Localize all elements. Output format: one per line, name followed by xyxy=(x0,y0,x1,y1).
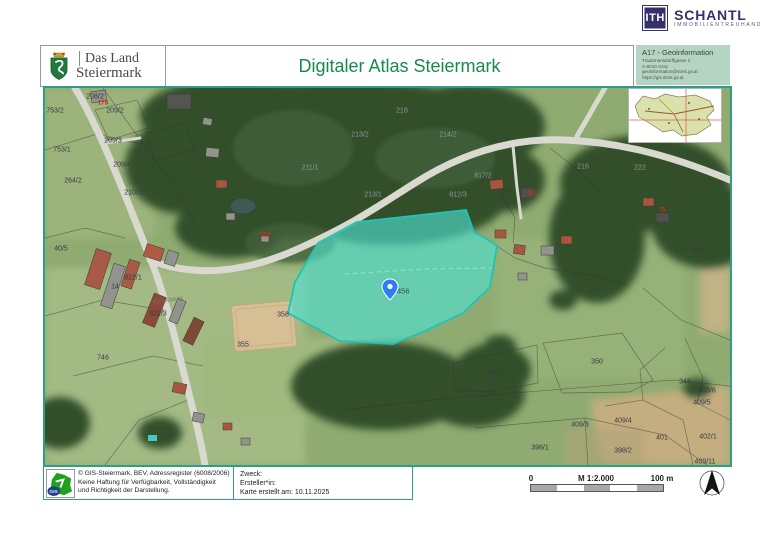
steiermark-overview-icon xyxy=(629,89,721,142)
copyright-line2: Keine Haftung für Verfügbarkeit, Vollstä… xyxy=(78,479,230,487)
header-bar: Das Land Steiermark Digitaler Atlas Stei… xyxy=(40,45,634,87)
aerial-imagery xyxy=(45,88,730,465)
zweck-label: Zweck: xyxy=(240,470,412,479)
logo-text-line1: Das Land xyxy=(79,51,142,66)
svg-text:GIS: GIS xyxy=(49,489,58,495)
brand-name: SCHANTL xyxy=(674,8,762,22)
scalebar-zero: 0 xyxy=(529,474,533,483)
pin-parcel-number: 456 xyxy=(397,287,410,296)
page-title: Digitaler Atlas Steiermark xyxy=(166,46,633,86)
ith-logo-icon: ITH xyxy=(642,5,668,31)
land-steiermark-logo: Das Land Steiermark xyxy=(41,46,166,86)
north-arrow-icon xyxy=(699,467,725,499)
copyright-line1: © GIS-Steiermark, BEV, Adressregister (6… xyxy=(78,470,230,478)
brand-subtitle: IMMOBILIENTREUHAND xyxy=(674,22,762,29)
department-info-box: A17 - Geoinformation Trauttmansdorffgass… xyxy=(636,45,730,85)
department-url: https://gis.stmk.gv.at xyxy=(642,75,730,81)
metadata-box: Zweck: Ersteller*in: Karte erstellt am: … xyxy=(233,466,413,500)
scalebar-max: 100 m xyxy=(651,474,674,483)
logo-text-line2: Steiermark xyxy=(76,66,142,81)
scalebar-ratio: M 1:2.000 xyxy=(578,474,614,483)
locator-inset-map xyxy=(628,88,722,143)
gis-steiermark-logo: GIS xyxy=(46,469,75,498)
ith-schantl-logo: ITH SCHANTL IMMOBILIENTREUHAND xyxy=(642,5,762,31)
scalebar xyxy=(530,484,664,492)
map-export-page: { "brand": {"abbr": "ITH", "name": "SCHA… xyxy=(0,0,770,545)
department-title: A17 - Geoinformation xyxy=(642,48,730,57)
copyright-line3: und Richtigkeit der Darstellung. xyxy=(78,487,230,495)
created-date: Karte erstellt am: 10.11.2025 xyxy=(240,488,412,497)
copyright-box: GIS © GIS-Steiermark, BEV, Adressregiste… xyxy=(43,466,234,500)
ersteller-label: Ersteller*in: xyxy=(240,479,412,488)
steiermark-shield-icon xyxy=(47,51,71,81)
